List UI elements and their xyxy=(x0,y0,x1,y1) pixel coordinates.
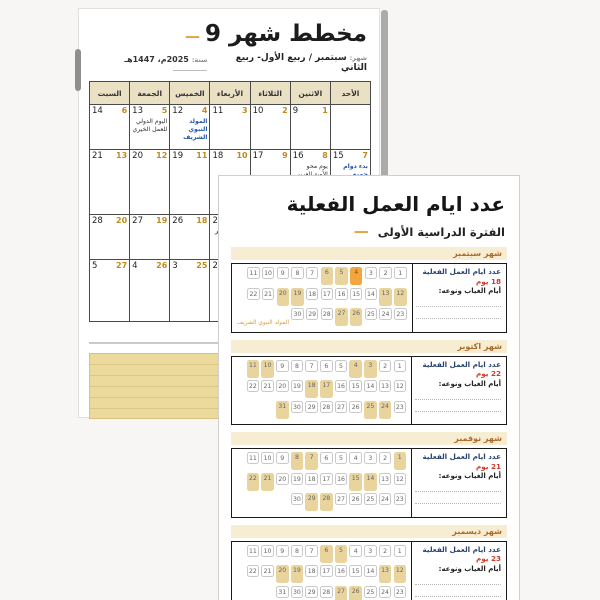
mini-day-cell: 4 xyxy=(349,452,362,464)
month-section-box: عدد ايام العمل الفعلية 23 يوم أيام الغيا… xyxy=(231,541,507,600)
weekday-header: الأربعاء xyxy=(210,82,250,105)
month-section-header: شهر سبتمبر xyxy=(231,247,507,260)
mini-day-cell: 29 xyxy=(306,308,319,320)
month-section-box: عدد ايام العمل الفعلية 22 يوم أيام الغيا… xyxy=(231,356,507,426)
mini-day-cell: 22 xyxy=(247,380,260,392)
mini-day-cell: 23 xyxy=(394,308,407,320)
mini-day-cell: 2 xyxy=(379,452,392,464)
mini-day-cell: 18 xyxy=(305,380,318,398)
mini-day-cell: 1 xyxy=(394,360,407,372)
mini-day-cell: 21 xyxy=(261,473,274,491)
mini-day-cell: 15 xyxy=(349,473,362,491)
mini-day-cell: 15 xyxy=(350,288,363,300)
mini-day-cell: 12 xyxy=(394,288,407,306)
mini-day-cell: 14 xyxy=(364,565,377,577)
calendar-day-cell: 135اليوم الدولي للعمل الخيري xyxy=(130,105,170,150)
mini-day-cell: 3 xyxy=(364,452,377,464)
mini-day-cell: 8 xyxy=(291,267,304,279)
mini-day-cell: 3 xyxy=(365,267,378,279)
mini-day-cell: 12 xyxy=(394,473,407,485)
dotted-line xyxy=(415,388,501,400)
calendar-day-cell: 113 xyxy=(210,105,250,150)
planner-year: سنة:2025م، 1447هـ xyxy=(89,55,207,73)
workdays-text-area: عدد ايام العمل الفعلية 22 يوم أيام الغيا… xyxy=(411,357,506,425)
mini-day-cell: 15 xyxy=(349,380,362,392)
calendar-day-cell: 124المولد النبوي الشريف xyxy=(170,105,210,150)
planner-title: مخطط شهر 9 xyxy=(205,21,367,47)
mini-day-cell: 31 xyxy=(276,586,289,598)
absence-label: أيام الغياب ونوعه: xyxy=(416,287,502,295)
mini-day-cell: 10 xyxy=(261,452,274,464)
absence-label: أيام الغياب ونوعه: xyxy=(415,380,501,388)
mini-day-cell: 8 xyxy=(291,452,304,470)
month-section-header: شهر اكتوبر xyxy=(231,340,507,353)
mini-day-cell: 26 xyxy=(349,493,362,505)
mini-day-cell: 9 xyxy=(277,267,290,279)
mini-day-cell: 9 xyxy=(276,545,289,557)
workdays-text-area: عدد ايام العمل الفعلية 21 يوم أيام الغيا… xyxy=(411,449,506,517)
month-section-header: شهر ديسمبر xyxy=(231,525,507,538)
mini-day-cell: 2 xyxy=(379,545,392,557)
planner-header: مخطط شهر 9— xyxy=(79,9,379,47)
mini-day-cell: 27 xyxy=(335,401,348,413)
mini-day-cell: 2 xyxy=(379,267,392,279)
mini-day-cell: 20 xyxy=(276,380,289,392)
absence-label: أيام الغياب ونوعه: xyxy=(415,565,501,573)
mini-day-cell: 10 xyxy=(262,267,275,279)
weekday-header: الجمعة xyxy=(130,82,170,105)
mini-day-cell: 8 xyxy=(291,360,304,372)
mini-day-cell: 4 xyxy=(349,360,362,378)
calendar-day-cell: 91 xyxy=(290,105,330,150)
mini-day-cell: 25 xyxy=(365,308,378,320)
mini-day-cell: 18 xyxy=(305,473,318,485)
dotted-line xyxy=(415,480,501,492)
mini-day-cell: 30 xyxy=(291,401,304,413)
mini-day-cell: 9 xyxy=(276,452,289,464)
mini-day-cell: 21 xyxy=(262,288,275,300)
calendar-day-cell: 2719 xyxy=(130,215,170,260)
month-label: شهر: xyxy=(350,54,367,62)
weekday-header: الثلاثاء xyxy=(250,82,290,105)
dotted-line xyxy=(415,573,501,585)
mini-day-cell: 3 xyxy=(364,545,377,557)
mini-day-cell: 26 xyxy=(350,308,363,326)
month-section-box: عدد ايام العمل الفعلية 21 يوم أيام الغيا… xyxy=(231,448,507,518)
mini-day-cell: 13 xyxy=(379,473,392,485)
mini-day-cell: 5 xyxy=(335,360,348,372)
calendar-day-cell: 2012 xyxy=(130,150,170,215)
mini-day-cell: 28 xyxy=(320,493,333,511)
mini-day-cell: 19 xyxy=(291,380,304,392)
mini-day-cell: 26 xyxy=(349,586,362,600)
dotted-line xyxy=(415,400,501,412)
mini-day-cell: 1 xyxy=(394,267,407,279)
mini-day-cell: 6 xyxy=(320,452,333,464)
mini-day-cell: 23 xyxy=(394,586,407,598)
mini-day-cell: 11 xyxy=(247,267,260,279)
mini-day-cell: 18 xyxy=(306,288,319,300)
workdays-count-line: عدد ايام العمل الفعلية 21 يوم xyxy=(415,452,501,471)
mini-day-cell: 29 xyxy=(305,586,318,598)
mini-day-cell: 11 xyxy=(247,545,260,557)
mini-day-cell: 17 xyxy=(320,565,333,577)
weekday-header-row: الأحدالاثنينالثلاثاءالأربعاءالخميسالجمعة… xyxy=(90,82,371,105)
year-fill-line xyxy=(173,70,207,71)
dotted-line xyxy=(415,492,501,504)
planner-subtitle-row: شهر:سبتمبر / ربيع الأول- ربيع الثاني سنة… xyxy=(79,47,379,73)
mini-day-cell: 5 xyxy=(335,267,348,285)
mini-day-cell: 13 xyxy=(379,380,392,392)
year-value: 2025م، 1447هـ xyxy=(124,55,189,64)
mini-calendar: 1234567891011121314151617181920212223242… xyxy=(232,357,411,425)
title-dash-icon: — xyxy=(185,27,200,45)
calendar-day-cell: 2113 xyxy=(90,150,130,215)
mini-day-cell: 2 xyxy=(379,360,392,372)
mini-day-cell: 25 xyxy=(364,493,377,505)
mini-day-cell: 31 xyxy=(276,401,289,419)
mini-day-cell: 14 xyxy=(364,380,377,392)
weekday-header: السبت xyxy=(90,82,130,105)
mini-day-cell: 12 xyxy=(394,565,407,583)
workdays-title: عدد ايام العمل الفعلية xyxy=(287,192,505,216)
mini-day-cell: 22 xyxy=(247,565,260,577)
mini-day-cell: 14 xyxy=(365,288,378,300)
mini-day-cell: 7 xyxy=(305,452,318,470)
dotted-line xyxy=(416,295,502,307)
mini-day-cell: 24 xyxy=(379,401,392,419)
calendar-day-cell xyxy=(330,105,370,150)
mini-calendar: 1234567891011121314151617181920212223242… xyxy=(232,542,411,600)
mini-day-cell: 9 xyxy=(276,360,289,372)
mini-day-cell: 19 xyxy=(291,565,304,583)
mini-day-cell: 7 xyxy=(305,545,318,557)
mini-day-cell: 22 xyxy=(247,473,260,491)
dotted-line xyxy=(416,307,502,319)
scroll-indicator[interactable] xyxy=(75,49,81,91)
month-value: سبتمبر / ربيع الأول- ربيع الثاني xyxy=(236,53,367,73)
calendar-day-cell: 426 xyxy=(130,260,170,322)
mini-day-cell: 20 xyxy=(277,288,290,306)
mini-day-cell: 19 xyxy=(291,473,304,485)
mini-day-cell: 10 xyxy=(261,545,274,557)
month-section-header: شهر نوفمبر xyxy=(231,432,507,445)
mini-day-cell: 4 xyxy=(349,545,362,557)
mini-day-cell: 1 xyxy=(394,452,407,470)
mini-day-cell: 29 xyxy=(305,401,318,413)
mini-day-cell: 16 xyxy=(335,565,348,577)
calendar-day-cell: 2820 xyxy=(90,215,130,260)
mini-day-cell: 11 xyxy=(247,452,260,464)
workdays-header: عدد ايام العمل الفعلية xyxy=(219,176,519,216)
mini-day-cell: 25 xyxy=(364,401,377,419)
mini-day-cell: 20 xyxy=(276,565,289,583)
planner-month: شهر:سبتمبر / ربيع الأول- ربيع الثاني xyxy=(207,53,367,73)
mini-calendar: 1234567891011121314151617181920212223242… xyxy=(232,449,411,517)
mini-day-cell: 30 xyxy=(291,308,304,320)
mini-day-cell: 29 xyxy=(305,493,318,511)
mini-day-cell: 11 xyxy=(247,360,260,378)
mini-day-cell: 23 xyxy=(394,493,407,505)
mini-day-cell: 6 xyxy=(321,267,334,285)
mini-day-cell: 19 xyxy=(291,288,304,306)
mini-day-cell: 27 xyxy=(335,493,348,505)
calendar-day-cell: 1911 xyxy=(170,150,210,215)
mini-day-cell: 28 xyxy=(321,308,334,320)
workdays-text-area: عدد ايام العمل الفعلية 18 يوم أيام الغيا… xyxy=(412,264,507,332)
mini-day-cell: 5 xyxy=(335,545,348,563)
dotted-line xyxy=(415,585,501,597)
desk-background: مخطط شهر 9— شهر:سبتمبر / ربيع الأول- ربي… xyxy=(0,0,600,600)
day-event-note: اليوم الدولي للعمل الخيري xyxy=(130,117,169,135)
mini-day-cell: 3 xyxy=(364,360,377,378)
mini-day-cell: 21 xyxy=(261,565,274,577)
workdays-count-line: عدد ايام العمل الفعلية 18 يوم xyxy=(416,267,502,286)
mini-calendar: 1234567891011121314151617181920212223242… xyxy=(232,264,412,332)
workdays-count-line: عدد ايام العمل الفعلية 22 يوم xyxy=(415,360,501,379)
mini-day-cell: 28 xyxy=(320,401,333,413)
workdays-subtitle: الفترة الدراسية الأولى — xyxy=(219,216,519,240)
mini-day-cell: 22 xyxy=(247,288,260,300)
mini-day-cell: 21 xyxy=(261,380,274,392)
mini-day-cell: 24 xyxy=(379,308,392,320)
mini-day-cell: 16 xyxy=(335,288,348,300)
mini-day-cell: 12 xyxy=(394,380,407,392)
mini-day-cell: 17 xyxy=(320,380,333,398)
day-event-note: المولد النبوي الشريف xyxy=(170,117,209,143)
month-section-box: عدد ايام العمل الفعلية 18 يوم أيام الغيا… xyxy=(231,263,507,333)
mini-day-cell: 28 xyxy=(320,586,333,598)
section-december: شهر ديسمبر عدد ايام العمل الفعلية 23 يوم… xyxy=(231,525,507,600)
workdays-count-line: عدد ايام العمل الفعلية 23 يوم xyxy=(415,545,501,564)
mini-day-cell: 25 xyxy=(364,586,377,598)
section-september: شهر سبتمبر عدد ايام العمل الفعلية 18 يوم… xyxy=(231,247,507,333)
subtitle-dash-icon: — xyxy=(354,222,369,240)
mini-day-cell: 27 xyxy=(335,308,348,326)
mini-day-cell: 14 xyxy=(364,473,377,491)
mini-day-cell: 26 xyxy=(349,401,362,413)
mini-day-cell: 10 xyxy=(261,360,274,378)
section-october: شهر اكتوبر عدد ايام العمل الفعلية 22 يوم… xyxy=(231,340,507,426)
mini-day-cell: 17 xyxy=(321,288,334,300)
calendar-day-cell: 325 xyxy=(170,260,210,322)
subtitle-text: الفترة الدراسية الأولى xyxy=(378,225,505,239)
weekday-header: الخميس xyxy=(170,82,210,105)
workdays-text-area: عدد ايام العمل الفعلية 23 يوم أيام الغيا… xyxy=(411,542,506,600)
absence-label: أيام الغياب ونوعه: xyxy=(415,472,501,480)
mini-day-cell: 1 xyxy=(394,545,407,557)
year-label: سنة: xyxy=(192,56,208,64)
mini-day-cell: 8 xyxy=(291,545,304,557)
mini-day-cell: 20 xyxy=(276,473,289,485)
mini-day-cell: 4 xyxy=(350,267,363,285)
mini-day-cell: 15 xyxy=(349,565,362,577)
mini-day-cell: 6 xyxy=(320,360,333,372)
mini-day-cell: 13 xyxy=(379,565,392,583)
mini-day-cell: 13 xyxy=(379,288,392,306)
mini-day-cell: 23 xyxy=(394,401,407,413)
weekday-header: الأحد xyxy=(330,82,370,105)
calendar-day-cell: 2618 xyxy=(170,215,210,260)
mini-day-cell: 18 xyxy=(305,565,318,577)
mini-day-cell: 7 xyxy=(306,267,319,279)
holiday-label: المولد النبوي الشريف xyxy=(235,320,289,326)
mini-day-cell: 17 xyxy=(320,473,333,485)
section-november: شهر نوفمبر عدد ايام العمل الفعلية 21 يوم… xyxy=(231,432,507,518)
mini-day-cell: 30 xyxy=(291,586,304,598)
calendar-day-cell: 527 xyxy=(90,260,130,322)
mini-day-cell: 5 xyxy=(335,452,348,464)
mini-day-cell: 16 xyxy=(335,380,348,392)
mini-day-cell: 24 xyxy=(379,586,392,598)
mini-day-cell: 6 xyxy=(320,545,333,563)
mini-day-cell: 7 xyxy=(305,360,318,372)
calendar-day-cell: 146 xyxy=(90,105,130,150)
workdays-page: عدد ايام العمل الفعلية الفترة الدراسية ا… xyxy=(218,175,520,600)
mini-day-cell: 27 xyxy=(335,586,348,600)
weekday-header: الاثنين xyxy=(290,82,330,105)
mini-day-cell: 16 xyxy=(335,473,348,485)
mini-day-cell: 24 xyxy=(379,493,392,505)
calendar-day-cell: 102 xyxy=(250,105,290,150)
mini-day-cell: 30 xyxy=(291,493,304,505)
